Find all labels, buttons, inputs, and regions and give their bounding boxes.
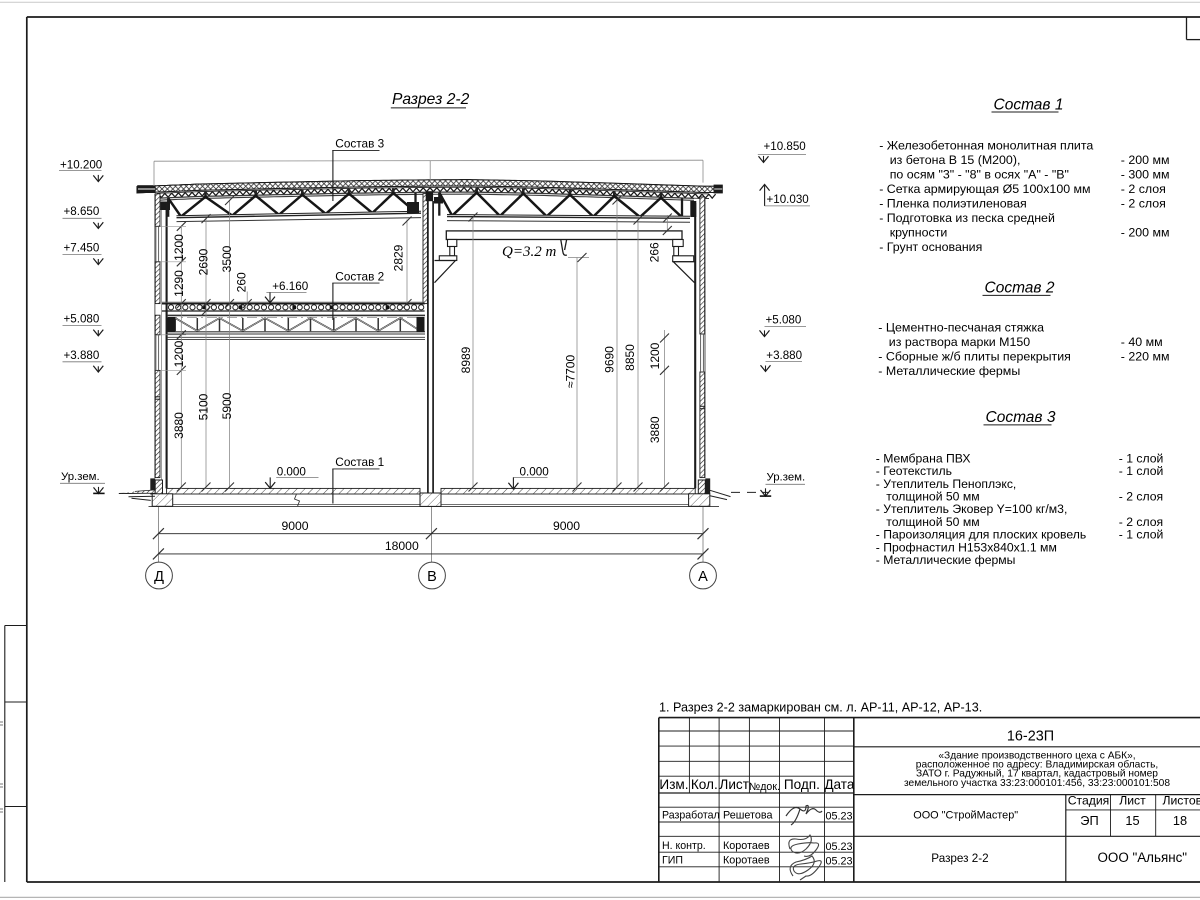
svg-text:- Сборные ж/б плиты перекрытия: - Сборные ж/б плиты перекрытия xyxy=(878,350,1071,364)
svg-text:Листов: Листов xyxy=(1163,794,1200,808)
svg-text:3880: 3880 xyxy=(172,412,186,439)
svg-text:15: 15 xyxy=(1125,813,1139,828)
svg-text:- 220 мм: - 220 мм xyxy=(1121,350,1170,364)
svg-text:Изм.: Изм. xyxy=(659,777,688,792)
svg-text:Состав 3: Состав 3 xyxy=(335,137,384,151)
svg-text:№док.: №док. xyxy=(749,781,780,793)
svg-text:+5.080: +5.080 xyxy=(64,313,100,326)
svg-text:05.23: 05.23 xyxy=(825,841,852,853)
svg-text:Решетова: Решетова xyxy=(723,810,773,822)
svg-text:- Металлические фермы: - Металлические фермы xyxy=(876,553,1016,567)
svg-text:по осям "3" - "8" в осях "А" -: по осям "3" - "8" в осях "А" - "В" xyxy=(890,167,1069,181)
svg-text:05.23: 05.23 xyxy=(825,856,852,868)
svg-text:- Цементно-песчаная стяжка: - Цементно-песчаная стяжка xyxy=(878,321,1044,335)
svg-text:05.23: 05.23 xyxy=(825,811,852,823)
svg-text:земельного участка 33:23:00010: земельного участка 33:23:000101:456, 33:… xyxy=(904,778,1170,789)
svg-text:+10.030: +10.030 xyxy=(767,193,809,206)
svg-text:Разрез 2-2: Разрез 2-2 xyxy=(931,852,988,865)
svg-text:Состав 2: Состав 2 xyxy=(335,269,384,283)
svg-text:+10.200: +10.200 xyxy=(60,158,102,171)
svg-text:Состав 2: Состав 2 xyxy=(985,279,1055,296)
svg-text:Стадия: Стадия xyxy=(1068,794,1110,808)
svg-text:- 1 слой: - 1 слой xyxy=(1119,528,1164,542)
svg-text:16-23П: 16-23П xyxy=(1007,729,1054,745)
svg-text:- 1 слой: - 1 слой xyxy=(1119,464,1164,478)
svg-text:Разрез 2-2: Разрез 2-2 xyxy=(392,91,470,108)
svg-text:3880: 3880 xyxy=(648,416,662,443)
svg-text:ГИП: ГИП xyxy=(662,855,683,867)
svg-text:- Металлические фермы: - Металлические фермы xyxy=(878,364,1020,378)
svg-text:- 2 слоя: - 2 слоя xyxy=(1121,197,1166,211)
svg-text:≈7700: ≈7700 xyxy=(564,355,578,389)
svg-text:1. Разрез 2-2 замаркирован см.: 1. Разрез 2-2 замаркирован см. л. АР-11,… xyxy=(659,700,982,714)
svg-text:- 40 мм: - 40 мм xyxy=(1121,335,1163,349)
svg-text:Лист: Лист xyxy=(1119,794,1146,808)
svg-text:9000: 9000 xyxy=(281,519,308,533)
svg-text:3500: 3500 xyxy=(220,245,234,272)
svg-text:Ур.зем.: Ур.зем. xyxy=(61,471,100,483)
svg-text:- Подготовка из песка средней: - Подготовка из песка средней xyxy=(879,211,1055,225)
svg-text:8989: 8989 xyxy=(459,346,473,373)
svg-text:+3.880: +3.880 xyxy=(766,349,802,362)
svg-text:18: 18 xyxy=(1173,813,1187,828)
svg-text:2690: 2690 xyxy=(197,248,211,275)
svg-text:+5.080: +5.080 xyxy=(766,313,802,326)
svg-text:9690: 9690 xyxy=(603,346,617,373)
svg-text:+10.850: +10.850 xyxy=(764,140,806,153)
svg-text:- 200 мм: - 200 мм xyxy=(1121,153,1170,167)
svg-text:- 300 мм: - 300 мм xyxy=(1121,167,1170,181)
svg-text:+6.160: +6.160 xyxy=(272,280,309,293)
svg-text:- Железобетонная монолитная п: - Железобетонная монолитная плита xyxy=(879,138,1093,152)
svg-text:Состав 1: Состав 1 xyxy=(335,455,384,469)
svg-text:ЭП: ЭП xyxy=(1080,813,1098,828)
svg-text:из бетона В 15 (М200),: из бетона В 15 (М200), xyxy=(890,153,1021,167)
svg-text:Состав 3: Состав 3 xyxy=(986,409,1056,426)
svg-text:260: 260 xyxy=(235,272,249,292)
svg-text:266: 266 xyxy=(648,242,662,262)
svg-text:1200: 1200 xyxy=(648,342,662,369)
svg-text:1290: 1290 xyxy=(172,270,186,297)
svg-text:В: В xyxy=(427,569,437,585)
svg-text:Ур.зем.: Ур.зем. xyxy=(767,471,806,483)
svg-text:крупности: крупности xyxy=(890,226,948,240)
svg-text:ООО "СтройМастер": ООО "СтройМастер" xyxy=(913,810,1018,822)
svg-text:- Сетка армирующая Ø5 100x100: - Сетка армирующая Ø5 100x100 мм xyxy=(879,182,1090,196)
svg-text:Q=3.2 m: Q=3.2 m xyxy=(502,244,556,260)
svg-text:- 200 мм: - 200 мм xyxy=(1121,226,1170,240)
svg-text:9000: 9000 xyxy=(553,519,580,533)
svg-text:+3.880: +3.880 xyxy=(64,349,100,362)
svg-text:Состав 1: Состав 1 xyxy=(994,97,1064,114)
svg-text:1200: 1200 xyxy=(172,234,186,261)
svg-text:- 2 слоя: - 2 слоя xyxy=(1121,182,1166,196)
svg-text:Коротаев: Коротаев xyxy=(723,840,770,852)
svg-text:5900: 5900 xyxy=(220,392,234,419)
svg-text:А: А xyxy=(698,569,708,585)
svg-text:из раствора марки М150: из раствора марки М150 xyxy=(889,335,1030,349)
svg-text:Разработал: Разработал xyxy=(662,810,720,822)
svg-text:- 2 слоя: - 2 слоя xyxy=(1119,490,1163,504)
svg-text:0.000: 0.000 xyxy=(520,465,550,478)
svg-text:- Пленка полиэтиленовая: - Пленка полиэтиленовая xyxy=(879,197,1026,211)
svg-text:Д: Д xyxy=(154,569,164,585)
svg-text:Кол.: Кол. xyxy=(691,777,718,792)
svg-text:18000: 18000 xyxy=(385,539,419,553)
svg-text:Н. контр.: Н. контр. xyxy=(662,840,706,852)
svg-text:Лист: Лист xyxy=(719,777,749,792)
svg-text:ООО "Альянс": ООО "Альянс" xyxy=(1098,850,1188,865)
svg-text:Дата: Дата xyxy=(824,777,855,792)
svg-text:8850: 8850 xyxy=(623,344,637,371)
svg-text:- Грунт основания: - Грунт основания xyxy=(879,240,982,254)
svg-text:+8.650: +8.650 xyxy=(64,205,100,218)
svg-text:+7.450: +7.450 xyxy=(64,242,100,255)
svg-text:Коротаев: Коротаев xyxy=(723,855,770,867)
svg-text:2829: 2829 xyxy=(392,244,406,271)
svg-text:0.000: 0.000 xyxy=(277,465,307,478)
svg-text:1200: 1200 xyxy=(172,340,186,367)
svg-text:Подп.: Подп. xyxy=(784,777,820,792)
svg-text:5100: 5100 xyxy=(197,393,211,420)
